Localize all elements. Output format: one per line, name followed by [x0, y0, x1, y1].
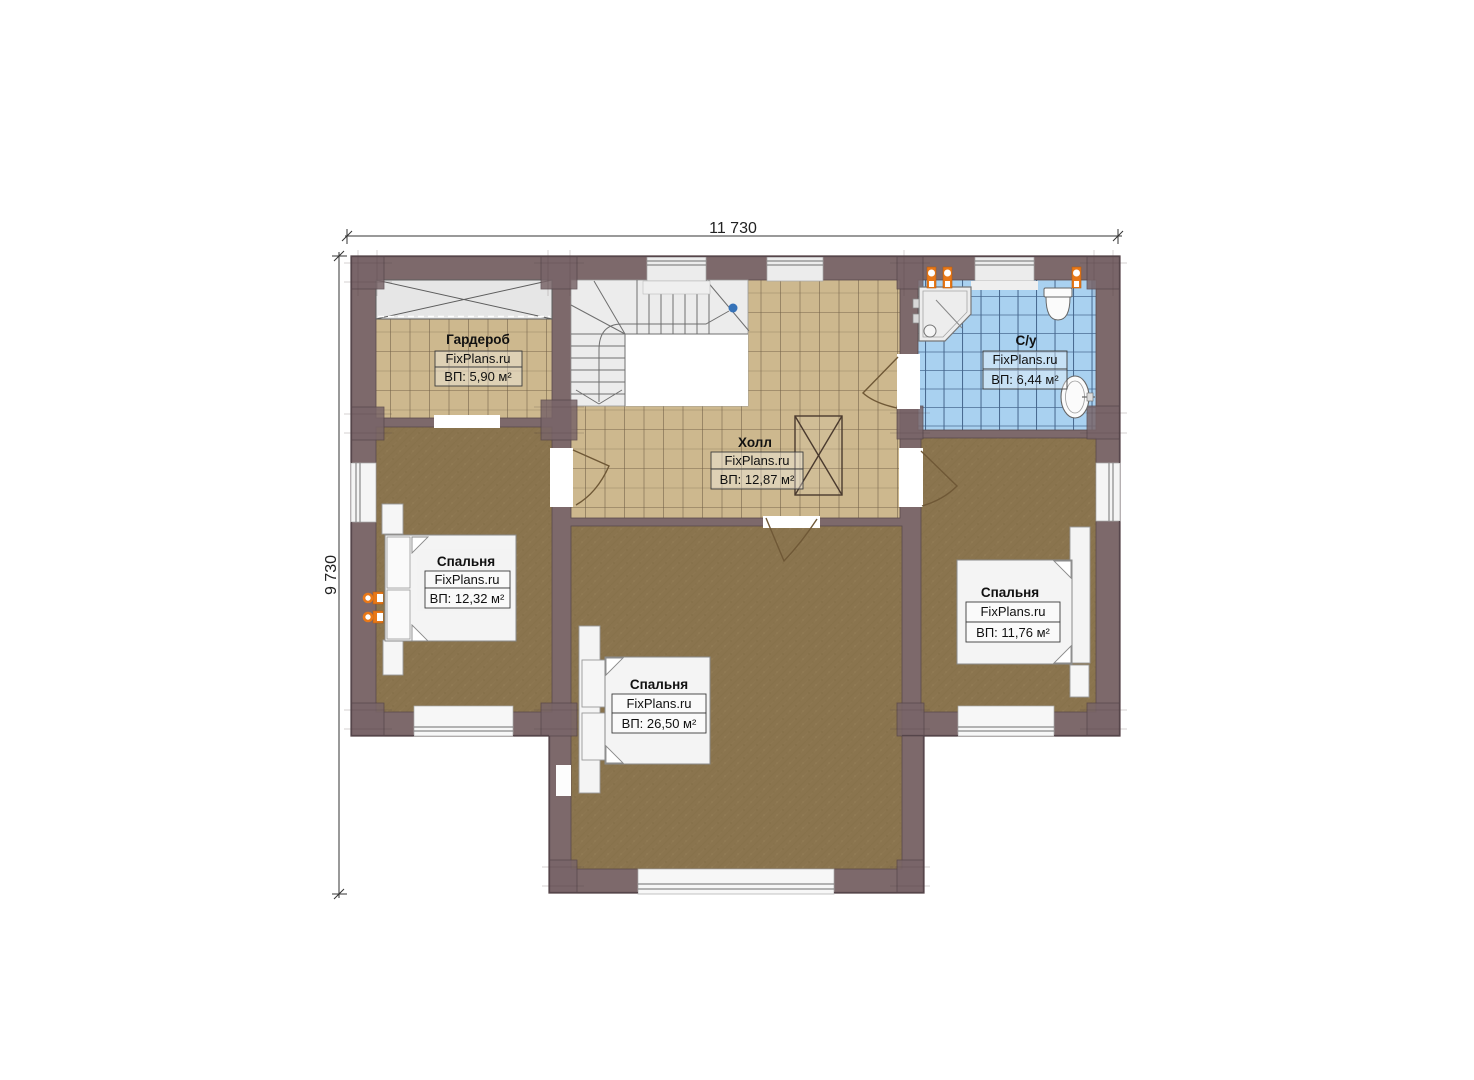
- svg-text:ВП: 12,87 м²: ВП: 12,87 м²: [720, 472, 795, 487]
- svg-text:Спальня: Спальня: [981, 585, 1039, 600]
- svg-text:9 730: 9 730: [323, 555, 340, 595]
- svg-text:ВП: 12,32 м²: ВП: 12,32 м²: [430, 591, 505, 606]
- svg-text:ВП: 26,50 м²: ВП: 26,50 м²: [622, 716, 697, 731]
- svg-text:FixPlans.ru: FixPlans.ru: [434, 572, 499, 587]
- svg-text:FixPlans.ru: FixPlans.ru: [445, 351, 510, 366]
- svg-text:Холл: Холл: [738, 435, 772, 450]
- svg-text:FixPlans.ru: FixPlans.ru: [724, 453, 789, 468]
- svg-text:ВП: 11,76 м²: ВП: 11,76 м²: [976, 625, 1050, 640]
- svg-text:С/у: С/у: [1015, 333, 1037, 348]
- svg-text:FixPlans.ru: FixPlans.ru: [626, 696, 691, 711]
- svg-text:FixPlans.ru: FixPlans.ru: [992, 352, 1057, 367]
- svg-text:ВП: 6,44 м²: ВП: 6,44 м²: [991, 372, 1059, 387]
- svg-text:Спальня: Спальня: [437, 554, 495, 569]
- svg-text:Гардероб: Гардероб: [446, 332, 510, 347]
- svg-text:FixPlans.ru: FixPlans.ru: [980, 604, 1045, 619]
- svg-text:ВП: 5,90 м²: ВП: 5,90 м²: [444, 369, 512, 384]
- svg-text:Спальня: Спальня: [630, 677, 688, 692]
- svg-text:11 730: 11 730: [709, 220, 757, 237]
